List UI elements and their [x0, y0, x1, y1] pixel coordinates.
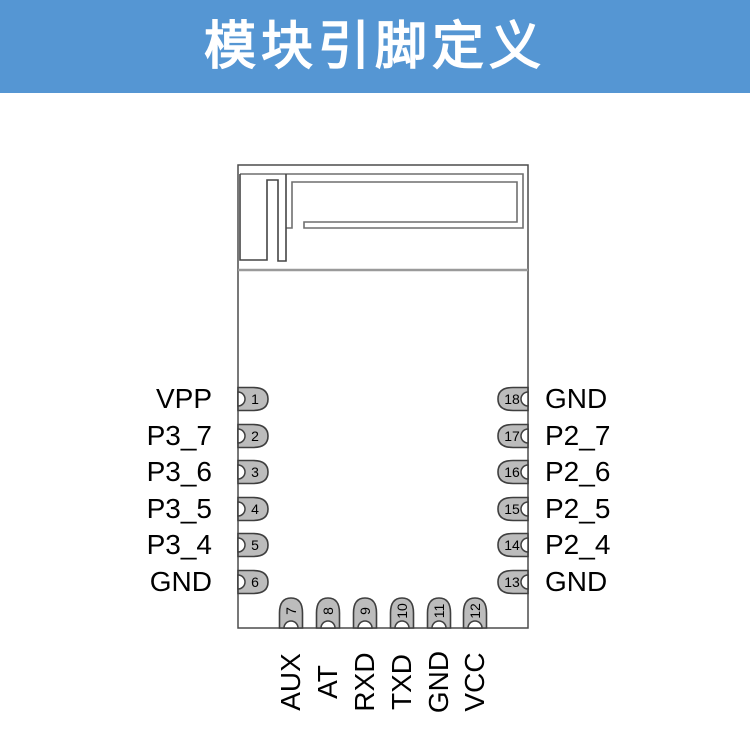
pin-vcc-label: VCC	[458, 652, 492, 711]
pin-9-number: 9	[358, 607, 372, 615]
pin-gnd13-label: GND	[545, 565, 607, 599]
pin-3-number: 3	[251, 465, 259, 479]
pin-7-notch	[284, 621, 298, 628]
pin-13-notch	[521, 575, 528, 589]
pin-15-number: 15	[504, 502, 520, 516]
pin-aux-label: AUX	[274, 653, 308, 711]
pin-p2_4-label: P2_4	[545, 528, 610, 562]
pin-11-notch	[432, 621, 446, 628]
pin-3-notch	[238, 465, 245, 479]
pin-4-notch	[238, 502, 245, 516]
pin-10-notch	[395, 621, 409, 628]
pin-2-notch	[238, 429, 245, 443]
pin-p2_7-label: P2_7	[545, 419, 610, 453]
pin-15-notch	[521, 502, 528, 516]
pin-p3_6-label: P3_6	[60, 455, 212, 489]
pin-5-notch	[238, 538, 245, 552]
pin-13-number: 13	[504, 575, 520, 589]
pin-p3_7-label: P3_7	[60, 419, 212, 453]
pin-6-number: 6	[251, 575, 259, 589]
pin-4-number: 4	[251, 502, 259, 516]
pin-14-notch	[521, 538, 528, 552]
pin-5-number: 5	[251, 538, 259, 552]
pin-at-label: AT	[311, 665, 345, 699]
pin-7-number: 7	[284, 607, 298, 615]
pin-11-number: 11	[432, 604, 446, 619]
pin-gnd11-label: GND	[422, 651, 456, 713]
pin-16-number: 16	[504, 465, 520, 479]
pin-18-number: 18	[504, 392, 520, 406]
pin-10-number: 10	[395, 603, 409, 619]
pin-p2_5-label: P2_5	[545, 492, 610, 526]
pin-12-notch	[468, 621, 482, 628]
pin-16-notch	[521, 465, 528, 479]
pin-vpp-label: VPP	[60, 382, 212, 416]
pin-17-notch	[521, 429, 528, 443]
module-body-outline	[238, 165, 528, 628]
pin-8-number: 8	[321, 607, 335, 615]
pin-gnd18-label: GND	[545, 382, 607, 416]
pin-6-notch	[238, 575, 245, 589]
pin-8-notch	[321, 621, 335, 628]
pin-18-notch	[521, 392, 528, 406]
pin-p2_6-label: P2_6	[545, 455, 610, 489]
pin-12-number: 12	[468, 603, 482, 619]
pin-17-number: 17	[504, 429, 520, 443]
module-diagram	[0, 0, 750, 740]
pin-rxd-label: RXD	[348, 652, 382, 711]
pin-1-number: 1	[251, 392, 259, 406]
pin-p3_5-label: P3_5	[60, 492, 212, 526]
pin-9-notch	[358, 621, 372, 628]
pin-14-number: 14	[504, 538, 520, 552]
pin-txd-label: TXD	[385, 654, 419, 710]
pinout-figure: 模块引脚定义	[0, 0, 750, 740]
pin-p3_4-label: P3_4	[60, 528, 212, 562]
pin-2-number: 2	[251, 429, 259, 443]
pin-gnd6-label: GND	[60, 565, 212, 599]
pin-1-notch	[238, 392, 245, 406]
